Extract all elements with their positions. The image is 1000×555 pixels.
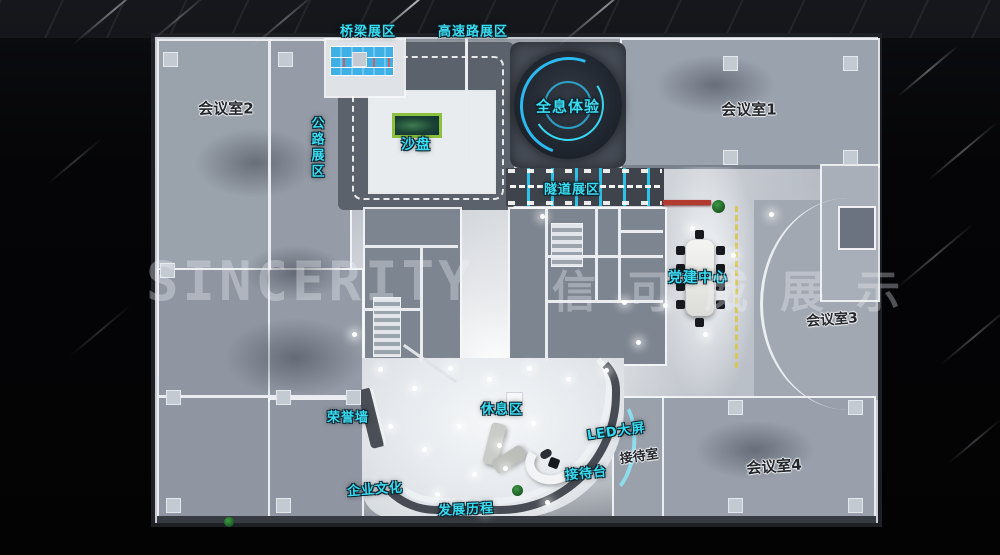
- ceiling-light-dot: [663, 303, 668, 308]
- label-corporate-culture: 企业文化: [346, 477, 403, 500]
- column-pillar: [843, 56, 858, 71]
- label-meeting-room-1: 会议室1: [721, 99, 776, 120]
- plant: [512, 485, 523, 496]
- conference-chair: [676, 246, 685, 255]
- ceiling-light-streak: [928, 121, 998, 180]
- ceiling-light-dot: [622, 300, 627, 305]
- column-pillar: [276, 390, 291, 405]
- column-pillar: [723, 150, 738, 165]
- inner-wall: [545, 255, 663, 258]
- ceiling-light-dot: [604, 368, 609, 373]
- column-pillar: [163, 52, 178, 67]
- inner-wall: [157, 395, 360, 398]
- ceiling-light-dot: [731, 253, 736, 258]
- ceiling-light-dot: [636, 340, 641, 345]
- inner-wall: [465, 38, 468, 164]
- plant: [712, 200, 725, 213]
- ceiling-light-dot: [487, 377, 492, 382]
- label-road-zone: 公路展区: [307, 116, 326, 180]
- inner-wall: [363, 308, 423, 311]
- inner-wall: [545, 300, 663, 303]
- column-pillar: [728, 498, 743, 513]
- road-dash-yellow-line: [735, 206, 738, 368]
- label-hologram-zone: 全息体验: [536, 96, 600, 117]
- ceiling-light-dot: [703, 332, 708, 337]
- ceiling-light-streak: [896, 223, 974, 289]
- conference-chair: [695, 318, 704, 327]
- inner-wall: [595, 207, 598, 300]
- label-party-center: 党建中心: [668, 267, 728, 287]
- column-pillar: [160, 263, 175, 278]
- label-development-history: 发展历程: [438, 497, 495, 519]
- ceiling-light-dot: [769, 212, 774, 217]
- plan-bottom-wall: [157, 516, 876, 523]
- ceiling-light-streak: [69, 305, 132, 358]
- ceiling-light-streak: [897, 45, 960, 98]
- label-sand-table: 沙盘: [401, 134, 431, 154]
- ceiling-light-dot: [448, 366, 453, 371]
- plant: [224, 517, 234, 527]
- column-pillar: [346, 390, 361, 405]
- ceiling-light-dot: [388, 424, 393, 429]
- label-honor-wall: 荣誉墙: [327, 407, 369, 426]
- ceiling-light-streak: [48, 138, 103, 185]
- column-pillar: [352, 52, 367, 67]
- sand-table-room: [370, 92, 494, 192]
- column-pillar: [723, 56, 738, 71]
- inner-wall: [618, 230, 663, 233]
- ceiling-light-streak: [948, 418, 1000, 465]
- conference-chair: [695, 230, 704, 239]
- ceiling-light-dot: [412, 386, 417, 391]
- ceiling-light-dot: [497, 443, 502, 448]
- column-pillar: [728, 400, 743, 415]
- shadow-smudge: [225, 318, 365, 398]
- label-meeting-room-2: 会议室2: [198, 98, 253, 119]
- ceiling-light-dot: [435, 492, 440, 497]
- inner-wall: [545, 207, 548, 362]
- column-pillar: [276, 498, 291, 513]
- column-pillar: [848, 498, 863, 513]
- inner-wall: [420, 245, 423, 362]
- inner-wall: [618, 207, 621, 300]
- ceiling-light-dot: [540, 214, 545, 219]
- ceiling-light-dot: [527, 366, 532, 371]
- stairs-right-block: [552, 224, 582, 266]
- ceiling-light-dot: [457, 424, 462, 429]
- ceiling-light-streak: [940, 306, 1000, 365]
- ceiling-light-dot: [352, 332, 357, 337]
- exhibition-hall-render: 桥梁展区 高速路展区 公路展区 全息体验 沙盘 隧道展区 党建中心 荣誉墙 休息…: [0, 0, 1000, 555]
- column-pillar: [278, 52, 293, 67]
- ceiling-light-dot: [545, 500, 550, 505]
- shadow-smudge: [195, 128, 315, 198]
- ceiling-light-dot: [531, 421, 536, 426]
- label-meeting-room-3: 会议室3: [805, 307, 858, 331]
- column-pillar: [848, 400, 863, 415]
- column-pillar: [166, 390, 181, 405]
- label-highway-zone: 高速路展区: [438, 21, 508, 40]
- conference-chair: [716, 300, 725, 309]
- conference-chair: [676, 300, 685, 309]
- label-meeting-room-4: 会议室4: [746, 454, 803, 479]
- label-rest-area: 休息区: [481, 399, 523, 418]
- ceiling-light-dot: [378, 367, 383, 372]
- column-pillar: [843, 150, 858, 165]
- label-tunnel-zone: 隧道展区: [544, 179, 600, 198]
- red-banner: [663, 200, 711, 205]
- column-pillar: [166, 498, 181, 513]
- label-bridge-zone: 桥梁展区: [340, 21, 396, 40]
- ceiling-light-dot: [566, 377, 571, 382]
- inner-wall: [268, 40, 271, 270]
- ceiling-light-dot: [503, 466, 508, 471]
- conference-chair: [716, 246, 725, 255]
- shadow-smudge: [245, 245, 345, 300]
- tunnel-lights-top: [508, 169, 662, 173]
- ceiling-light-dot: [472, 472, 477, 477]
- ceiling-light-dot: [422, 447, 427, 452]
- inner-wall: [363, 245, 458, 248]
- tunnel-lights-bottom: [508, 201, 662, 205]
